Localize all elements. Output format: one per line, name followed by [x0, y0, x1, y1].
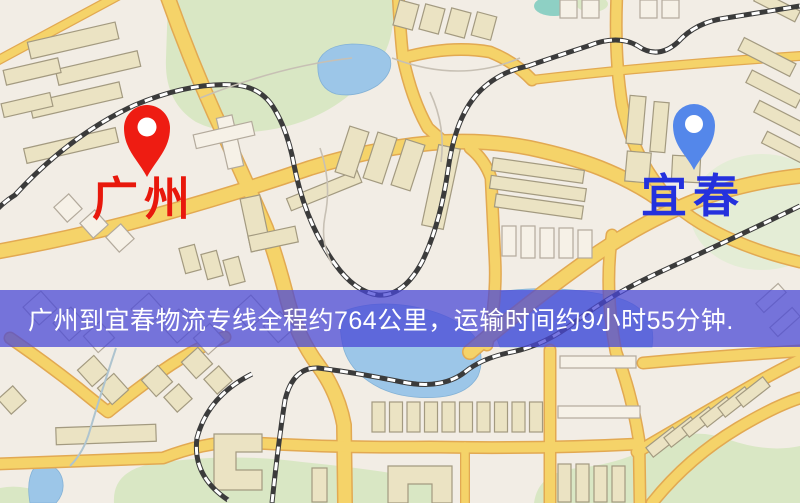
red-pin-hole — [138, 118, 157, 137]
destination-city-label: 宜春 — [641, 174, 745, 220]
route-info-text: 广州到宜春物流专线全程约764公里，运输时间约9小时55分钟. — [0, 301, 734, 337]
route-info-banner: 广州到宜春物流专线全程约764公里，运输时间约9小时55分钟. — [0, 290, 800, 347]
map-canvas[interactable] — [0, 0, 800, 503]
blue-pin-hole — [685, 115, 703, 133]
origin-city-label: 广州 — [92, 177, 196, 223]
stream — [29, 466, 63, 503]
map-screenshot: 广州 宜春 广州到宜春物流专线全程约764公里，运输时间约9小时55分钟. — [0, 0, 800, 503]
